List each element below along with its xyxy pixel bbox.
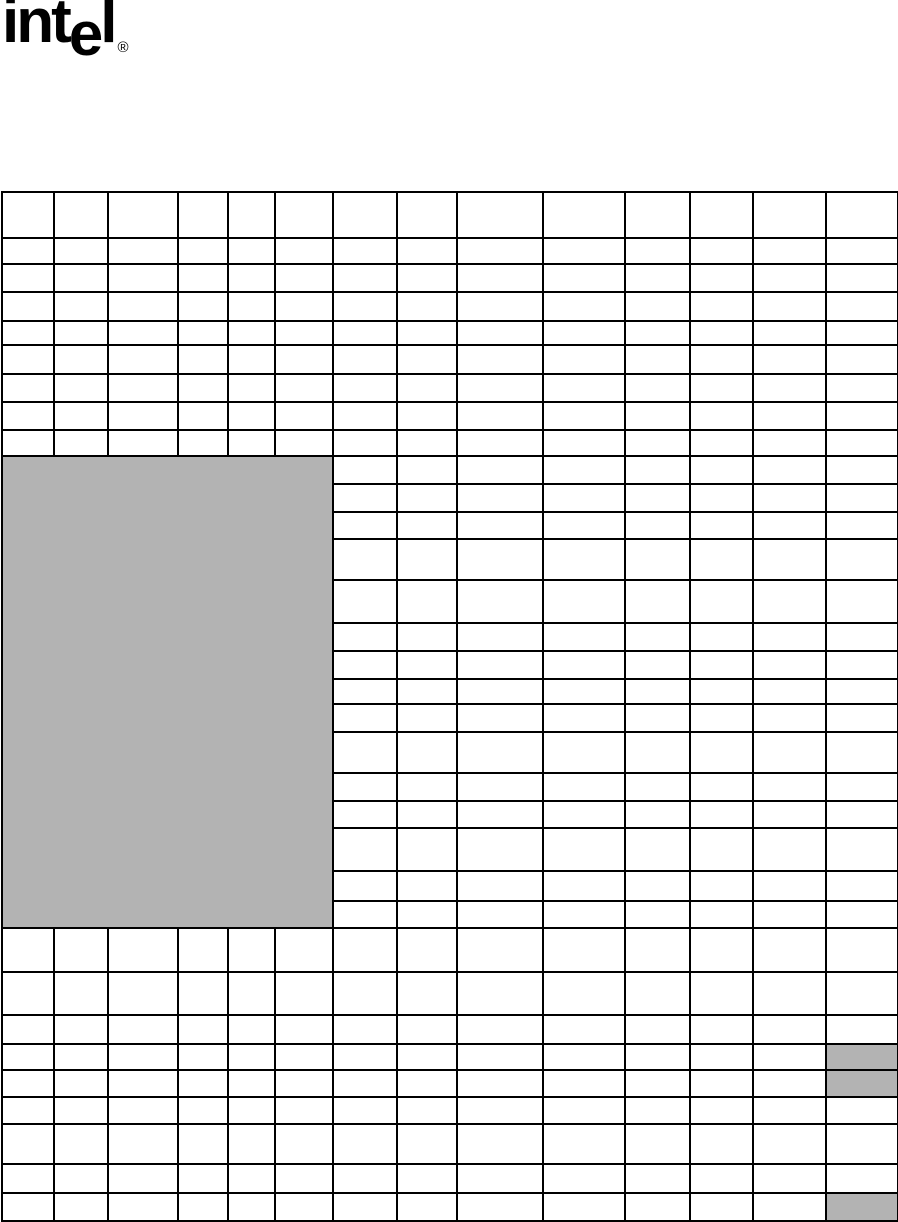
table-cell bbox=[108, 972, 178, 1015]
table-cell bbox=[397, 828, 457, 871]
table-cell bbox=[333, 430, 397, 456]
table-cell bbox=[2, 402, 54, 430]
table-cell bbox=[397, 801, 457, 828]
table-cell bbox=[457, 972, 543, 1015]
table-cell bbox=[457, 773, 543, 801]
table-cell bbox=[228, 1193, 275, 1221]
table-cell bbox=[543, 292, 625, 321]
table-cell bbox=[457, 238, 543, 264]
table-cell bbox=[108, 1044, 178, 1070]
table-cell bbox=[275, 238, 333, 264]
table-cell bbox=[228, 321, 275, 345]
table-cell bbox=[275, 928, 333, 972]
table-cell bbox=[543, 623, 625, 651]
table-cell bbox=[753, 264, 826, 292]
table-cell bbox=[275, 1164, 333, 1193]
table-cell bbox=[543, 321, 625, 345]
table-cell bbox=[457, 732, 543, 773]
table-cell bbox=[2, 972, 54, 1015]
table-cell bbox=[333, 321, 397, 345]
table-cell bbox=[753, 901, 826, 928]
table-cell bbox=[543, 512, 625, 539]
table-cell bbox=[457, 871, 543, 901]
table-cell bbox=[2, 1015, 54, 1044]
table-cell bbox=[397, 402, 457, 430]
table-cell bbox=[397, 704, 457, 732]
table-cell bbox=[826, 1015, 898, 1044]
table-cell bbox=[543, 374, 625, 402]
table-cell bbox=[54, 430, 108, 456]
table-cell bbox=[333, 801, 397, 828]
table-cell bbox=[543, 1124, 625, 1164]
table-cell bbox=[54, 292, 108, 321]
table-cell bbox=[228, 972, 275, 1015]
table-cell bbox=[543, 773, 625, 801]
table-cell bbox=[625, 374, 690, 402]
table-cell bbox=[457, 321, 543, 345]
table-cell bbox=[625, 801, 690, 828]
table-cell bbox=[543, 402, 625, 430]
table-cell bbox=[457, 1070, 543, 1097]
table-cell bbox=[690, 704, 753, 732]
table-cell bbox=[753, 580, 826, 623]
table-cell bbox=[543, 192, 625, 238]
table-cell bbox=[826, 430, 898, 456]
table-cell bbox=[690, 345, 753, 374]
table-cell bbox=[178, 1015, 228, 1044]
table-cell bbox=[753, 623, 826, 651]
table-cell bbox=[543, 828, 625, 871]
table-cell bbox=[690, 651, 753, 679]
table-cell bbox=[275, 374, 333, 402]
table-cell bbox=[2, 374, 54, 402]
table-cell bbox=[228, 345, 275, 374]
table-cell bbox=[457, 580, 543, 623]
table-cell bbox=[333, 1164, 397, 1193]
table-cell bbox=[333, 512, 397, 539]
datasheet-grid bbox=[1, 191, 898, 1222]
table-cell bbox=[753, 292, 826, 321]
table-cell bbox=[625, 321, 690, 345]
table-cell bbox=[54, 928, 108, 972]
table-cell bbox=[333, 871, 397, 901]
table-cell bbox=[826, 828, 898, 871]
table-cell bbox=[826, 704, 898, 732]
table-cell bbox=[2, 1044, 54, 1070]
table-cell bbox=[753, 374, 826, 402]
table-cell bbox=[275, 1124, 333, 1164]
table-cell bbox=[333, 1070, 397, 1097]
table-cell bbox=[108, 264, 178, 292]
table-cell bbox=[826, 321, 898, 345]
table-cell bbox=[625, 264, 690, 292]
table-cell bbox=[625, 1044, 690, 1070]
table-cell bbox=[397, 1044, 457, 1070]
table-cell bbox=[543, 679, 625, 704]
table-cell bbox=[178, 1070, 228, 1097]
table-cell bbox=[625, 1164, 690, 1193]
intel-logo-dropped-e: e bbox=[69, 2, 100, 67]
table-cell bbox=[2, 928, 54, 972]
table-cell bbox=[275, 1193, 333, 1221]
table-cell bbox=[397, 456, 457, 484]
table-cell bbox=[54, 1164, 108, 1193]
table-cell bbox=[826, 901, 898, 928]
table-cell bbox=[625, 651, 690, 679]
table-cell bbox=[625, 402, 690, 430]
table-cell bbox=[54, 238, 108, 264]
table-cell bbox=[457, 679, 543, 704]
table-cell bbox=[397, 1164, 457, 1193]
table-cell bbox=[108, 374, 178, 402]
table-cell bbox=[397, 580, 457, 623]
table-cell bbox=[275, 192, 333, 238]
table-cell bbox=[397, 773, 457, 801]
table-cell bbox=[108, 928, 178, 972]
table-cell bbox=[178, 321, 228, 345]
table-cell bbox=[397, 972, 457, 1015]
table-cell bbox=[543, 928, 625, 972]
table-cell bbox=[54, 374, 108, 402]
table-cell bbox=[178, 430, 228, 456]
table-cell bbox=[625, 773, 690, 801]
table-cell bbox=[457, 374, 543, 402]
table-cell bbox=[625, 238, 690, 264]
table-cell bbox=[333, 484, 397, 512]
table-cell bbox=[690, 374, 753, 402]
table-cell bbox=[333, 679, 397, 704]
table-cell bbox=[54, 192, 108, 238]
table-cell bbox=[826, 402, 898, 430]
table-cell bbox=[333, 402, 397, 430]
table-cell bbox=[690, 580, 753, 623]
table-cell bbox=[826, 972, 898, 1015]
table-cell bbox=[333, 1097, 397, 1124]
shaded-merged-region bbox=[2, 456, 333, 928]
table-cell bbox=[457, 456, 543, 484]
table-cell bbox=[690, 732, 753, 773]
table-cell bbox=[333, 539, 397, 580]
table-cell bbox=[333, 345, 397, 374]
table-cell bbox=[753, 345, 826, 374]
table-cell bbox=[457, 1015, 543, 1044]
table-cell bbox=[457, 1097, 543, 1124]
table-cell bbox=[543, 456, 625, 484]
table-cell bbox=[333, 901, 397, 928]
table-cell bbox=[178, 374, 228, 402]
table-cell bbox=[625, 928, 690, 972]
table-cell bbox=[228, 1015, 275, 1044]
table-cell bbox=[543, 901, 625, 928]
table-cell bbox=[397, 374, 457, 402]
table-cell bbox=[333, 704, 397, 732]
table-cell bbox=[690, 901, 753, 928]
table-cell bbox=[826, 580, 898, 623]
table-cell bbox=[753, 773, 826, 801]
table-cell bbox=[228, 928, 275, 972]
table-cell bbox=[690, 773, 753, 801]
table-cell bbox=[690, 679, 753, 704]
table-cell bbox=[457, 539, 543, 580]
table-cell bbox=[108, 238, 178, 264]
table-cell bbox=[2, 238, 54, 264]
table-cell bbox=[543, 484, 625, 512]
table-cell bbox=[54, 972, 108, 1015]
table-cell bbox=[108, 1164, 178, 1193]
table-cell bbox=[108, 402, 178, 430]
table-cell bbox=[543, 1164, 625, 1193]
table-cell bbox=[457, 345, 543, 374]
table-cell bbox=[228, 374, 275, 402]
table-cell bbox=[228, 430, 275, 456]
table-cell bbox=[275, 402, 333, 430]
intel-logo: intel® bbox=[2, 0, 129, 54]
table-cell bbox=[690, 192, 753, 238]
table-cell bbox=[457, 928, 543, 972]
table-cell bbox=[753, 972, 826, 1015]
table-cell bbox=[625, 623, 690, 651]
table-cell bbox=[625, 192, 690, 238]
table-cell bbox=[397, 1124, 457, 1164]
table-cell bbox=[826, 539, 898, 580]
table-cell bbox=[690, 512, 753, 539]
table-cell bbox=[753, 321, 826, 345]
table-cell bbox=[543, 580, 625, 623]
table-cell bbox=[625, 539, 690, 580]
table-cell bbox=[397, 651, 457, 679]
table-cell bbox=[753, 1070, 826, 1097]
table-cell bbox=[753, 402, 826, 430]
table-cell bbox=[228, 402, 275, 430]
table-cell bbox=[108, 321, 178, 345]
table-cell bbox=[54, 1070, 108, 1097]
table-cell bbox=[753, 1097, 826, 1124]
table-cell bbox=[228, 1097, 275, 1124]
table-cell bbox=[625, 1124, 690, 1164]
table-cell bbox=[690, 292, 753, 321]
data-table bbox=[1, 191, 898, 1222]
table-cell bbox=[826, 1164, 898, 1193]
table-cell bbox=[178, 402, 228, 430]
table-cell bbox=[753, 238, 826, 264]
table-cell bbox=[457, 402, 543, 430]
table-cell bbox=[178, 345, 228, 374]
table-cell bbox=[108, 345, 178, 374]
table-cell bbox=[625, 1015, 690, 1044]
table-cell bbox=[753, 679, 826, 704]
table-cell bbox=[275, 972, 333, 1015]
table-cell bbox=[625, 1193, 690, 1221]
table-cell bbox=[826, 264, 898, 292]
table-cell bbox=[690, 928, 753, 972]
table-cell bbox=[457, 623, 543, 651]
table-cell bbox=[690, 1044, 753, 1070]
table-cell bbox=[275, 1070, 333, 1097]
table-cell bbox=[178, 1193, 228, 1221]
table-cell bbox=[228, 1164, 275, 1193]
table-cell bbox=[333, 264, 397, 292]
table-cell bbox=[275, 321, 333, 345]
table-cell bbox=[625, 512, 690, 539]
table-cell bbox=[108, 292, 178, 321]
table-cell bbox=[333, 773, 397, 801]
table-cell bbox=[690, 1015, 753, 1044]
table-cell bbox=[625, 972, 690, 1015]
table-cell bbox=[397, 1097, 457, 1124]
table-cell bbox=[333, 623, 397, 651]
table-cell bbox=[753, 1044, 826, 1070]
table-cell bbox=[826, 484, 898, 512]
table-cell bbox=[397, 871, 457, 901]
table-cell bbox=[753, 456, 826, 484]
table-cell bbox=[457, 1193, 543, 1221]
table-cell bbox=[457, 828, 543, 871]
table-cell bbox=[753, 1124, 826, 1164]
table-cell bbox=[228, 1044, 275, 1070]
table-cell bbox=[457, 901, 543, 928]
table-cell bbox=[333, 1044, 397, 1070]
table-cell bbox=[2, 321, 54, 345]
table-cell bbox=[457, 704, 543, 732]
table-cell bbox=[333, 292, 397, 321]
table-cell bbox=[690, 1164, 753, 1193]
table-cell bbox=[690, 1193, 753, 1221]
table-cell bbox=[54, 264, 108, 292]
table-cell bbox=[543, 704, 625, 732]
table-cell bbox=[457, 651, 543, 679]
table-cell bbox=[333, 972, 397, 1015]
table-cell bbox=[457, 484, 543, 512]
table-cell bbox=[397, 321, 457, 345]
table-cell bbox=[690, 1070, 753, 1097]
table-cell bbox=[397, 430, 457, 456]
table-cell bbox=[753, 1015, 826, 1044]
table-cell bbox=[625, 580, 690, 623]
table-cell bbox=[397, 292, 457, 321]
table-cell bbox=[826, 345, 898, 374]
table-cell bbox=[228, 292, 275, 321]
table-cell bbox=[228, 192, 275, 238]
table-cell bbox=[333, 374, 397, 402]
table-cell bbox=[333, 456, 397, 484]
table-cell bbox=[54, 1015, 108, 1044]
table-cell bbox=[275, 430, 333, 456]
table-cell bbox=[543, 238, 625, 264]
table-cell bbox=[690, 238, 753, 264]
table-cell bbox=[625, 430, 690, 456]
table-cell bbox=[457, 1044, 543, 1070]
table-cell bbox=[543, 732, 625, 773]
table-cell bbox=[826, 1124, 898, 1164]
table-cell bbox=[543, 1070, 625, 1097]
table-cell bbox=[2, 292, 54, 321]
table-cell bbox=[690, 456, 753, 484]
table-cell bbox=[2, 1097, 54, 1124]
table-cell bbox=[178, 1164, 228, 1193]
table-cell bbox=[228, 1124, 275, 1164]
table-cell bbox=[457, 292, 543, 321]
table-cell bbox=[397, 1070, 457, 1097]
table-cell bbox=[753, 512, 826, 539]
table-cell bbox=[826, 238, 898, 264]
table-cell bbox=[108, 192, 178, 238]
table-cell bbox=[826, 374, 898, 402]
table-cell bbox=[690, 264, 753, 292]
table-cell bbox=[397, 732, 457, 773]
table-cell bbox=[54, 321, 108, 345]
table-cell bbox=[2, 345, 54, 374]
table-cell bbox=[690, 801, 753, 828]
table-cell bbox=[397, 1015, 457, 1044]
table-cell bbox=[333, 732, 397, 773]
intel-logo-text-post: l bbox=[100, 0, 114, 56]
table-cell bbox=[108, 1097, 178, 1124]
table-cell bbox=[54, 402, 108, 430]
table-cell bbox=[275, 292, 333, 321]
shaded-cell bbox=[826, 1193, 898, 1221]
table-cell bbox=[397, 539, 457, 580]
table-cell bbox=[2, 1070, 54, 1097]
table-cell bbox=[753, 1164, 826, 1193]
table-cell bbox=[108, 1015, 178, 1044]
table-cell bbox=[826, 1097, 898, 1124]
table-cell bbox=[690, 402, 753, 430]
table-cell bbox=[457, 1164, 543, 1193]
table-cell bbox=[2, 1193, 54, 1221]
table-cell bbox=[54, 1097, 108, 1124]
table-cell bbox=[826, 928, 898, 972]
table-cell bbox=[753, 484, 826, 512]
table-cell bbox=[826, 623, 898, 651]
table-cell bbox=[178, 928, 228, 972]
table-cell bbox=[753, 651, 826, 679]
table-cell bbox=[753, 704, 826, 732]
table-cell bbox=[826, 679, 898, 704]
table-cell bbox=[690, 484, 753, 512]
table-cell bbox=[625, 704, 690, 732]
table-cell bbox=[625, 456, 690, 484]
table-cell bbox=[826, 732, 898, 773]
table-cell bbox=[333, 1015, 397, 1044]
table-cell bbox=[397, 901, 457, 928]
table-cell bbox=[178, 1124, 228, 1164]
table-cell bbox=[54, 345, 108, 374]
table-cell bbox=[178, 1097, 228, 1124]
table-cell bbox=[397, 679, 457, 704]
table-cell bbox=[543, 539, 625, 580]
table-cell bbox=[178, 192, 228, 238]
table-cell bbox=[543, 871, 625, 901]
table-cell bbox=[753, 1193, 826, 1221]
table-cell bbox=[826, 192, 898, 238]
table-cell bbox=[543, 972, 625, 1015]
table-cell bbox=[457, 264, 543, 292]
table-cell bbox=[2, 430, 54, 456]
table-cell bbox=[108, 1070, 178, 1097]
table-cell bbox=[690, 1097, 753, 1124]
table-cell bbox=[397, 264, 457, 292]
table-cell bbox=[108, 430, 178, 456]
table-cell bbox=[275, 1015, 333, 1044]
table-cell bbox=[397, 512, 457, 539]
table-cell bbox=[457, 430, 543, 456]
table-cell bbox=[397, 928, 457, 972]
table-cell bbox=[2, 264, 54, 292]
table-cell bbox=[397, 1193, 457, 1221]
table-cell bbox=[333, 1193, 397, 1221]
table-cell bbox=[457, 192, 543, 238]
table-cell bbox=[228, 238, 275, 264]
